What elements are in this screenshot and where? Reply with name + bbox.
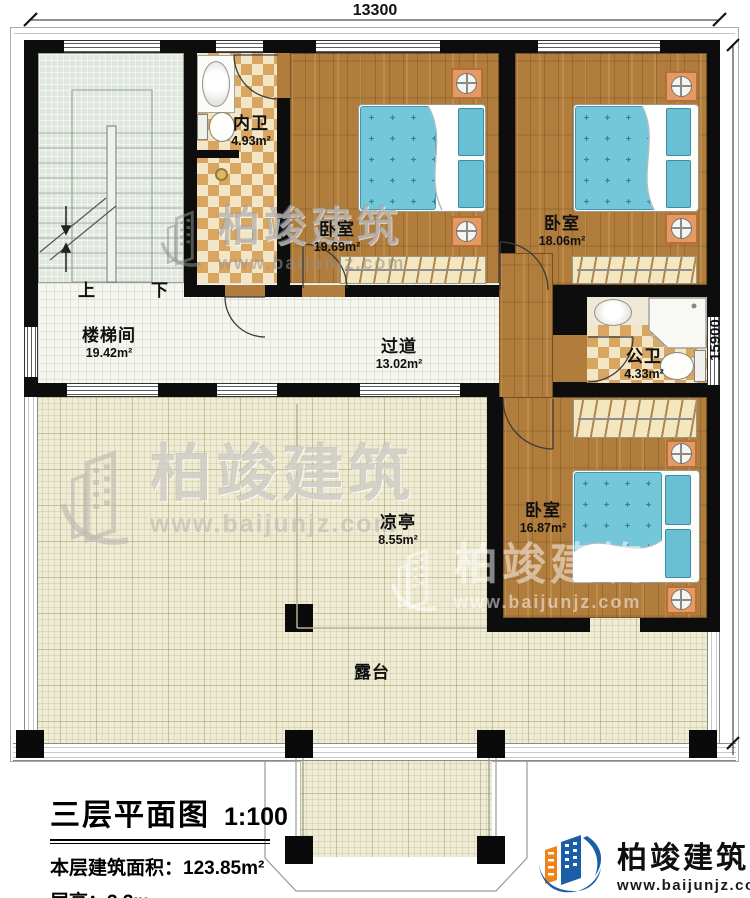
wall [277,383,360,397]
room-label-bedroom-2: 卧室18.06m² [539,214,586,248]
wardrobe [340,256,486,284]
wall [707,385,720,632]
room-label-bedroom-3: 卧室16.87m² [520,501,567,535]
floor-stairwell [38,53,184,283]
room-label-bath-public: 公卫4.33m² [624,347,664,381]
floor-door-bay [499,253,553,415]
brand-logo-icon [531,830,609,896]
bed-1-pillow [458,160,484,208]
window [24,327,38,377]
wall [265,285,302,297]
title-underline-thick [50,839,270,841]
sink-icon [594,299,632,326]
nightstand [451,68,483,99]
room-label-pavilion: 凉亭8.55m² [378,513,418,547]
parapet [13,743,736,761]
nightstand [666,440,697,468]
brand-url: www.baijunjz.com [617,877,750,894]
wardrobe [573,399,697,438]
lamp-icon [671,443,692,464]
floor-height-value: 3.3m [107,892,150,898]
wall [587,383,707,397]
wall [277,98,290,297]
nightstand [666,586,697,614]
wall [487,397,503,632]
wardrobe-rail [345,269,481,271]
wardrobe-rail [577,269,692,271]
toilet-icon [660,352,694,380]
window [217,383,277,397]
floor-height-label: 层高： [50,892,107,898]
dimension-height: 15900 [707,314,727,366]
brand-name: 柏竣建筑 [617,833,750,877]
window [316,40,440,53]
wall [345,285,499,297]
toilet-icon [197,114,208,140]
title-row: 三层平面图 1:100 [50,790,330,834]
bed-2-mattress [575,106,663,210]
wall [499,40,515,253]
bed-3-pillow [665,475,691,525]
dimension-width: 13300 [345,2,405,20]
nightstand [665,213,698,244]
bed-2-pillow [666,108,691,156]
plan-title: 三层平面图 [50,790,210,834]
door-threshold [277,53,290,98]
floor-area-label: 本层建筑面积： [50,858,183,879]
wall [24,40,38,327]
door-threshold [225,285,265,297]
plan-scale: 1:100 [224,803,288,832]
floor-height-row: 层高：3.3m [50,887,330,898]
lamp-icon [671,76,692,97]
column [689,730,717,758]
wardrobe [572,256,697,284]
nightstand [665,71,698,102]
title-underline-thin [50,843,270,844]
window [360,383,460,397]
nightstand [451,216,483,247]
wall [553,382,587,397]
wall [460,383,499,397]
column [285,730,313,758]
window [64,40,160,53]
window [538,40,660,53]
door-threshold [302,285,345,297]
floor-drain-icon [215,168,228,181]
floor-plan-canvas: 柏竣建筑 www.baijunjz.com 柏竣建筑 www.baijunjz.… [0,0,750,898]
title-block: 三层平面图 1:100 本层建筑面积：123.85m² 层高：3.3m [50,790,330,898]
wall [487,618,590,632]
bed-3-mattress [574,472,662,581]
wall [707,40,720,317]
bed-2-pillow [666,160,691,208]
window [67,383,158,397]
brand-text: 柏竣建筑 www.baijunjz.com [617,833,750,894]
floor-area-value: 123.85m² [183,858,264,879]
lamp-icon [456,73,477,94]
stair-label-down: 下 [151,281,169,301]
column [16,730,44,758]
wall [263,40,316,53]
wall [158,383,217,397]
sink-icon [202,61,230,107]
column [285,604,313,632]
toilet-tank [694,350,706,382]
parapet [707,632,720,743]
wall [640,618,707,632]
room-label-terrace: 露台 [354,663,390,683]
wall [440,40,538,53]
parapet [24,397,38,743]
room-label-bath-inner: 内卫4.93m² [231,114,271,148]
room-label-stairwell: 楼梯间19.42m² [82,326,136,360]
bed-1-pillow [458,108,484,156]
wall [184,40,197,297]
stair-label-up: 上 [78,281,96,301]
lamp-icon [671,589,692,610]
brand-logo: 柏竣建筑 www.baijunjz.com [531,830,750,896]
door-threshold [553,335,587,382]
wall [24,383,67,397]
room-label-corridor: 过道13.02m² [376,337,423,371]
room-label-bedroom-1: 卧室19.69m² [314,220,361,254]
column [477,730,505,758]
wall [184,285,225,297]
wardrobe-rail [578,418,692,420]
wall [660,40,707,53]
building-outline-inner [14,33,735,34]
window [216,40,263,53]
column [477,836,505,864]
wall [553,285,587,335]
wall [587,285,707,297]
bed-3-pillow [665,529,691,578]
lamp-icon [671,218,692,239]
wall-stub [197,150,239,158]
bed-1-mattress [360,106,436,210]
floor-area-row: 本层建筑面积：123.85m² [50,853,330,880]
lamp-icon [456,221,477,242]
